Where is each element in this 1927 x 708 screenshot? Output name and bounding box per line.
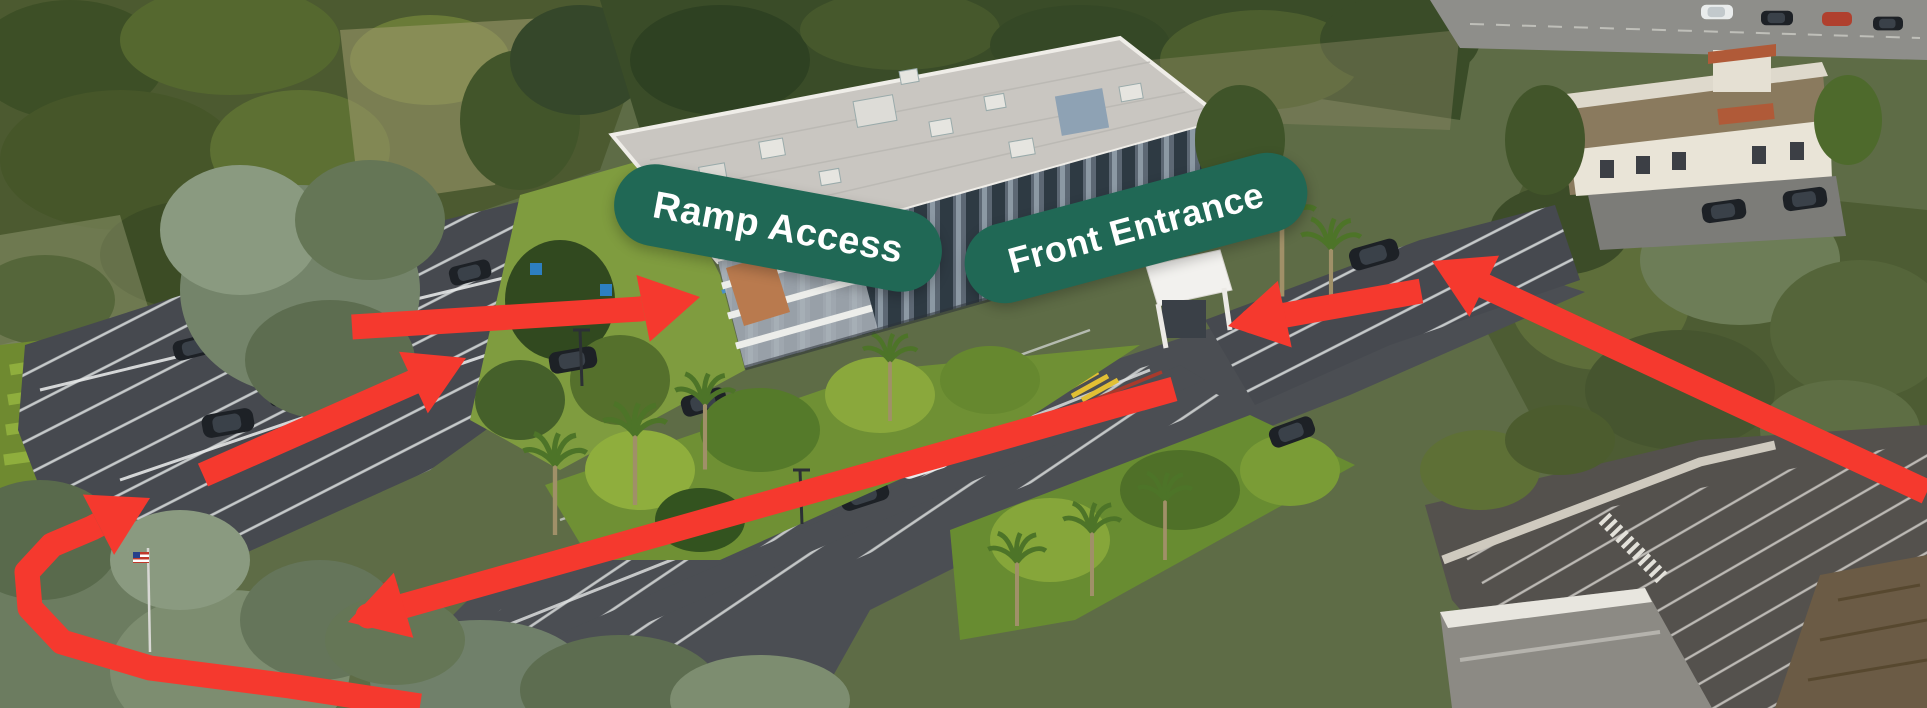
down-lower-lot-arrow (348, 389, 1174, 638)
u-turn-bottom-left-arrow (27, 494, 420, 706)
route-arrows-overlay (0, 0, 1927, 708)
aerial-campus-photo: Ramp Access Front Entrance (0, 0, 1927, 708)
to-front-entrance-arrow (1228, 281, 1421, 348)
up-left-lot-arrow (203, 352, 466, 475)
entry-from-right-arrow (1432, 256, 1927, 492)
to-ramp-arrow (352, 275, 700, 342)
